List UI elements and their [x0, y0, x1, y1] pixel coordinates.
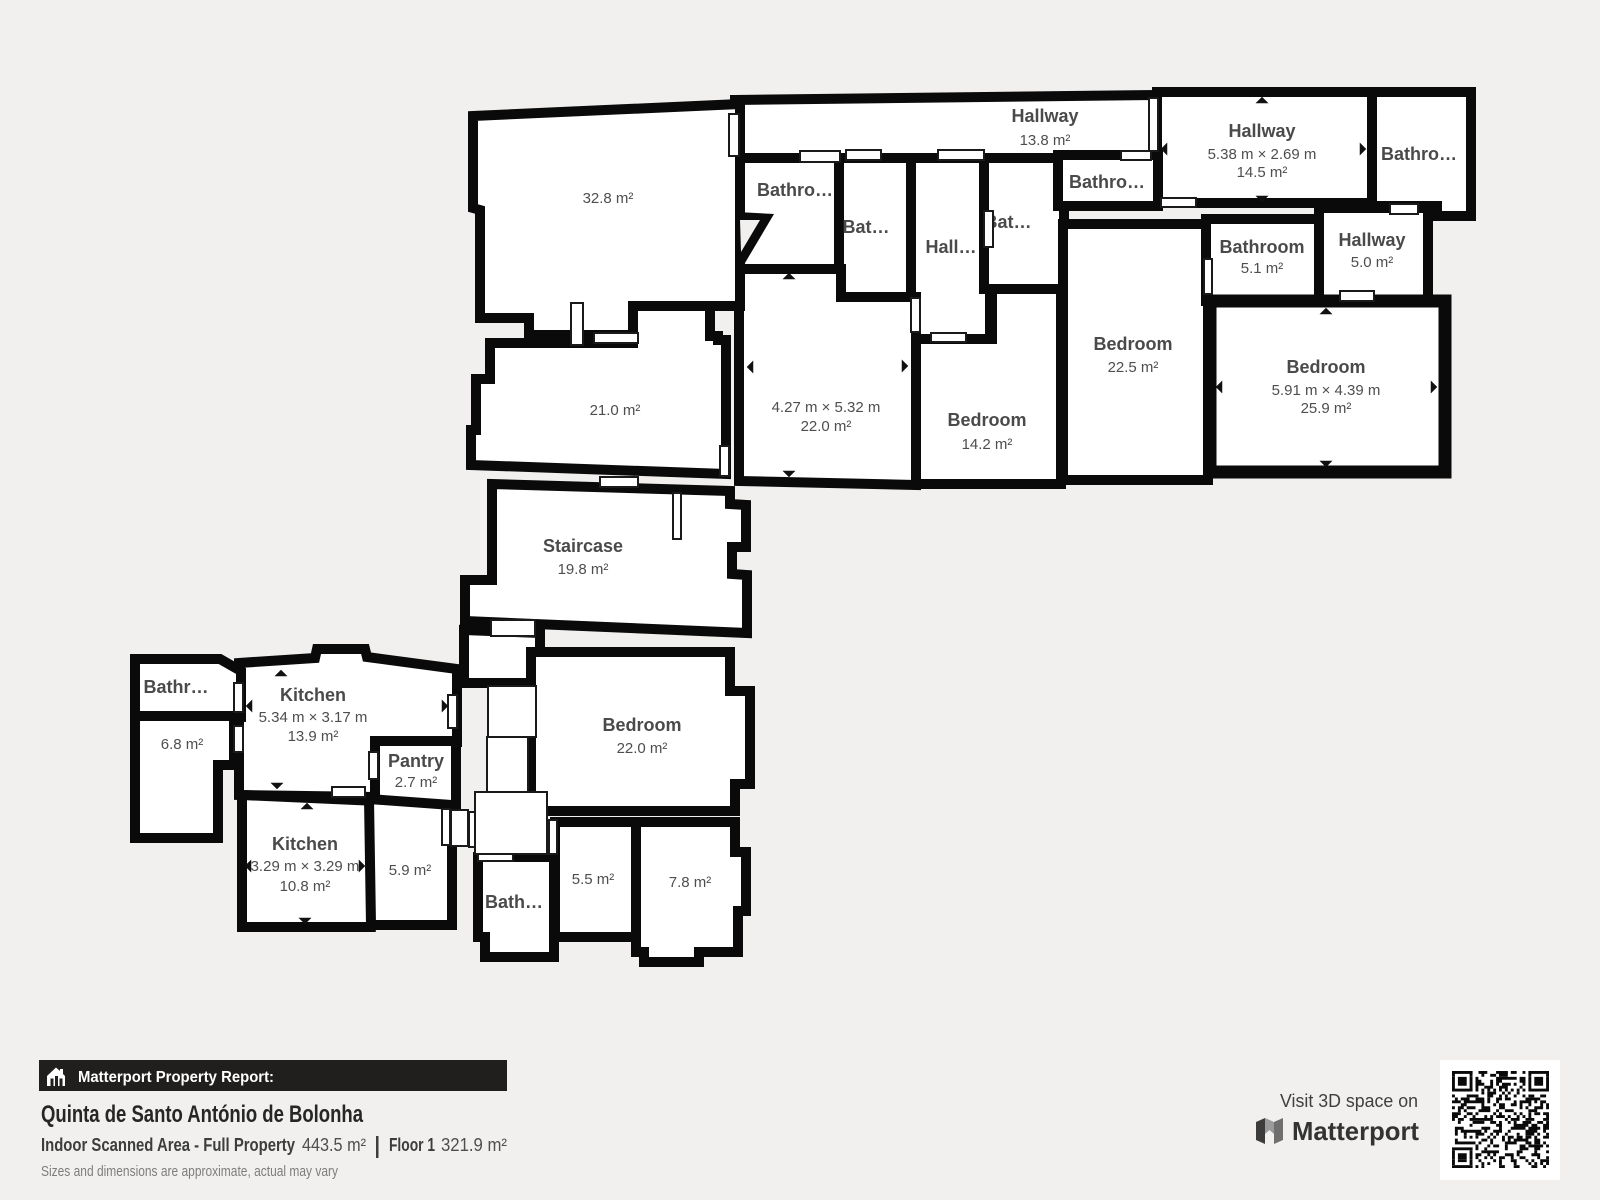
svg-text:Sizes and dimensions are appro: Sizes and dimensions are approximate, ac…	[41, 1163, 338, 1180]
svg-text:Floor 1: Floor 1	[389, 1135, 435, 1155]
svg-text:13.8 m²: 13.8 m²	[1020, 132, 1071, 149]
svg-text:Hall…: Hall…	[925, 237, 976, 257]
svg-text:5.91 m × 4.39 m: 5.91 m × 4.39 m	[1272, 382, 1381, 399]
svg-text:Indoor Scanned Area - Full Pro: Indoor Scanned Area - Full Property	[41, 1135, 295, 1155]
svg-text:Bathro…: Bathro…	[757, 180, 833, 200]
svg-text:32.8 m²: 32.8 m²	[583, 190, 634, 207]
svg-text:22.0 m²: 22.0 m²	[801, 418, 852, 435]
svg-text:22.5 m²: 22.5 m²	[1108, 359, 1159, 376]
svg-text:14.2 m²: 14.2 m²	[962, 436, 1013, 453]
svg-text:Staircase: Staircase	[543, 536, 623, 556]
svg-text:Bedroom: Bedroom	[947, 410, 1026, 430]
svg-text:21.0 m²: 21.0 m²	[590, 402, 641, 419]
svg-text:Hallway: Hallway	[1228, 121, 1295, 141]
svg-text:Hallway: Hallway	[1011, 106, 1078, 126]
svg-text:Hallway: Hallway	[1338, 230, 1405, 250]
svg-text:Bathro…: Bathro…	[1381, 144, 1457, 164]
svg-text:2.7 m²: 2.7 m²	[395, 774, 438, 791]
svg-text:5.9 m²: 5.9 m²	[389, 862, 432, 879]
svg-text:5.1 m²: 5.1 m²	[1241, 260, 1284, 277]
svg-text:3.29 m × 3.29 m: 3.29 m × 3.29 m	[251, 858, 360, 875]
svg-text:Bat…: Bat…	[842, 217, 889, 237]
svg-text:Bathr…: Bathr…	[143, 677, 208, 697]
svg-text:Matterport Property Report:: Matterport Property Report:	[78, 1069, 274, 1086]
svg-text:Visit 3D space on: Visit 3D space on	[1280, 1091, 1418, 1111]
svg-text:Pantry: Pantry	[388, 751, 444, 771]
svg-text:5.34 m × 3.17 m: 5.34 m × 3.17 m	[259, 709, 368, 726]
svg-text:5.0 m²: 5.0 m²	[1351, 254, 1394, 271]
svg-text:Bath…: Bath…	[485, 892, 543, 912]
svg-text:443.5 m²: 443.5 m²	[302, 1135, 366, 1155]
svg-text:Bedroom: Bedroom	[1286, 357, 1365, 377]
svg-text:Bedroom: Bedroom	[602, 715, 681, 735]
svg-text:Kitchen: Kitchen	[280, 685, 346, 705]
svg-text:Kitchen: Kitchen	[272, 834, 338, 854]
svg-text:321.9 m²: 321.9 m²	[441, 1135, 507, 1155]
svg-text:Bathro…: Bathro…	[1069, 172, 1145, 192]
svg-text:5.38 m × 2.69 m: 5.38 m × 2.69 m	[1208, 146, 1317, 163]
svg-text:4.27 m × 5.32 m: 4.27 m × 5.32 m	[772, 399, 881, 416]
svg-text:Bathroom: Bathroom	[1220, 237, 1305, 257]
svg-text:19.8 m²: 19.8 m²	[558, 561, 609, 578]
svg-text:6.8 m²: 6.8 m²	[161, 736, 204, 753]
svg-text:5.5 m²: 5.5 m²	[572, 871, 615, 888]
svg-text:Bedroom: Bedroom	[1093, 334, 1172, 354]
svg-text:Matterport: Matterport	[1292, 1116, 1419, 1146]
svg-text:10.8 m²: 10.8 m²	[280, 878, 331, 895]
svg-text:13.9 m²: 13.9 m²	[288, 728, 339, 745]
svg-text:7.8 m²: 7.8 m²	[669, 874, 712, 891]
svg-text:25.9 m²: 25.9 m²	[1301, 400, 1352, 417]
svg-text:14.5 m²: 14.5 m²	[1237, 164, 1288, 181]
svg-text:Quinta de Santo António de Bol: Quinta de Santo António de Bolonha	[41, 1101, 364, 1128]
svg-text:22.0 m²: 22.0 m²	[617, 740, 668, 757]
